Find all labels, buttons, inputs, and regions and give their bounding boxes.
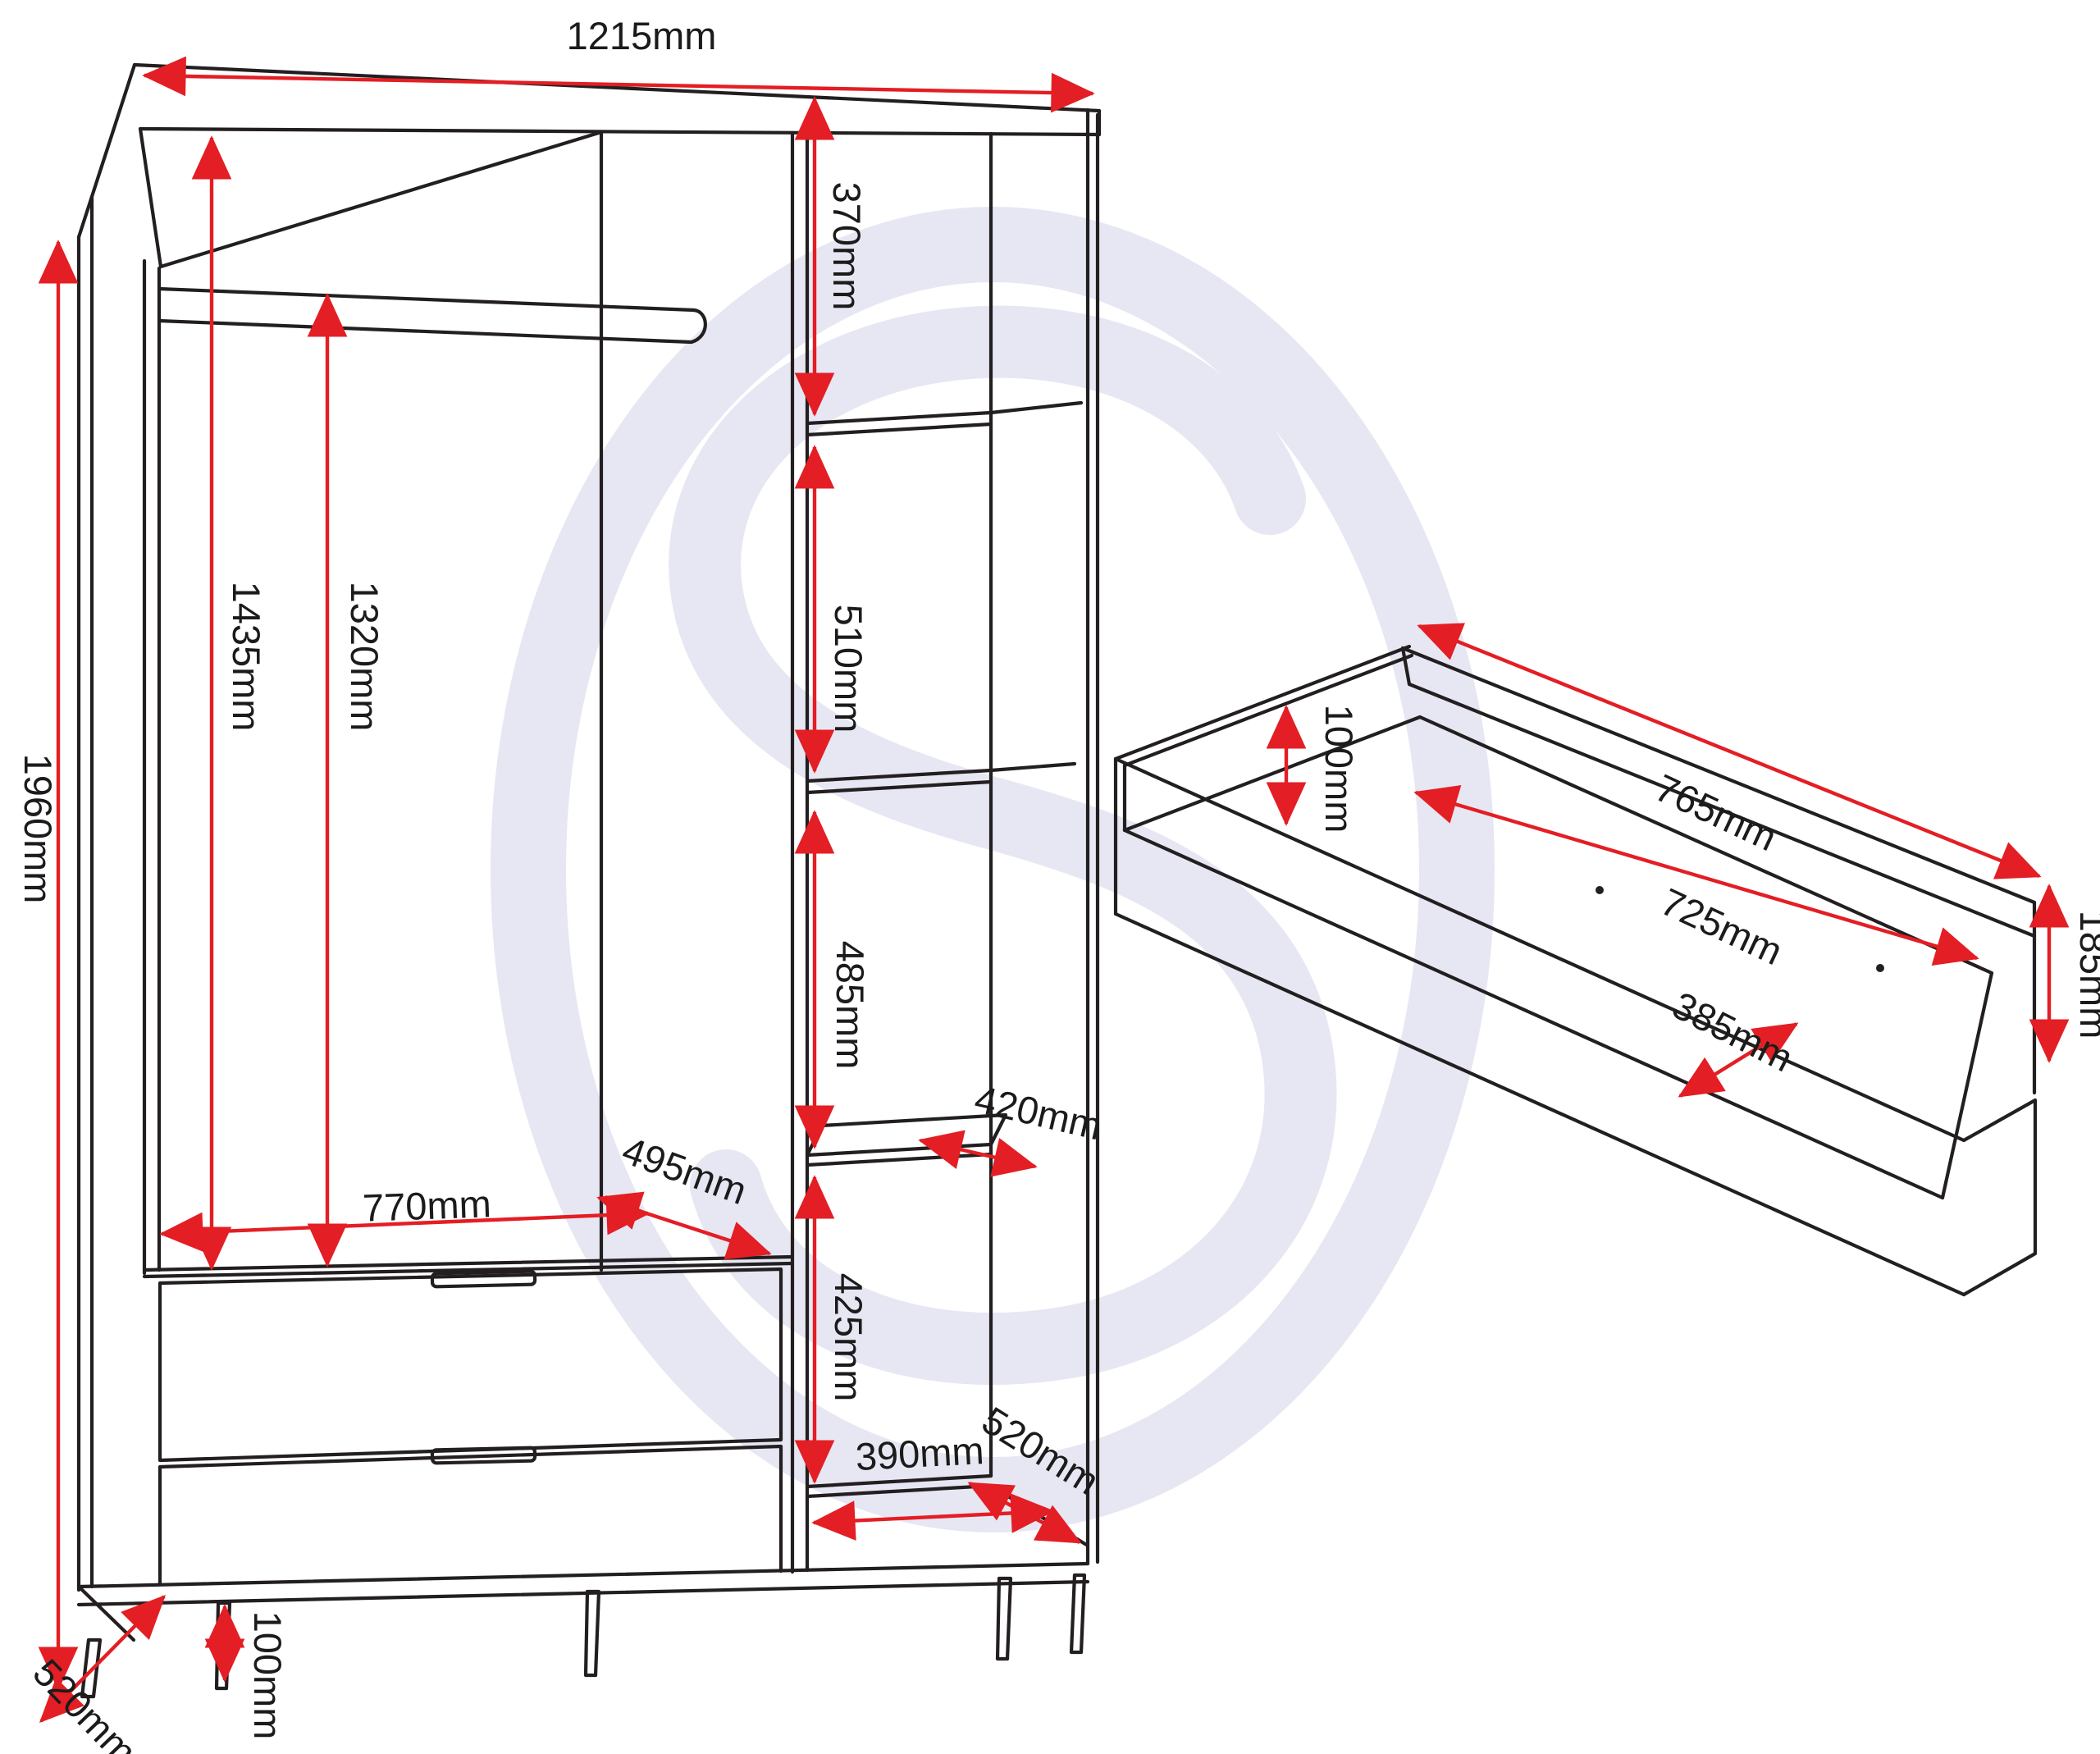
dim-label-height-total: 1960mm xyxy=(16,754,60,904)
dim-label-leg-height: 100mm xyxy=(246,1611,290,1740)
hanging-rail-top xyxy=(159,289,694,310)
leg-middle xyxy=(586,1592,599,1675)
drawer-back-hole-right xyxy=(1876,964,1884,972)
wardrobe-top-front-edge xyxy=(135,65,1099,111)
drawer-left-rim-outer xyxy=(1116,646,1409,759)
dim-label-sec3: 485mm xyxy=(829,941,872,1070)
dim-label-sec4: 425mm xyxy=(827,1273,870,1402)
watermark-s-curve xyxy=(705,342,1300,1349)
dim-label-dd-inner-height: 100mm xyxy=(1317,705,1361,834)
back-wall-top-edge xyxy=(161,132,601,267)
dim-label-dd-inner-depth: 385mm xyxy=(1666,983,1801,1080)
drawer-back-top-edge xyxy=(1403,648,2034,902)
dim-label-dd-back-width: 765mm xyxy=(1649,765,1783,859)
drawer-back-hole-left xyxy=(1596,886,1604,894)
drawer-left-rim-inner xyxy=(1125,655,1412,765)
shelf-3 xyxy=(807,1115,1006,1165)
dim-arrow-width-top xyxy=(144,75,1093,94)
dim-label-base-width: 390mm xyxy=(854,1428,984,1478)
dim-label-interior-height: 1435mm xyxy=(225,582,268,732)
plinth-rail-bottom xyxy=(79,1582,1088,1605)
dim-label-dd-inner-width: 725mm xyxy=(1655,879,1789,973)
leg-right xyxy=(997,1578,1011,1659)
drawer-floor-right-edge xyxy=(1942,973,1992,1198)
dim-label-sec1: 370mm xyxy=(825,182,869,311)
wardrobe-top-band-bottom xyxy=(140,129,1099,135)
left-panel-bottom-slant xyxy=(79,1587,134,1640)
dim-label-rail-height: 1320mm xyxy=(343,582,386,732)
drawer-floor-left-edge xyxy=(1125,717,1420,830)
drawer-floor-front-edge xyxy=(1125,830,1942,1198)
dim-label-width-top: 1215mm xyxy=(567,14,717,57)
plinth-rail-top xyxy=(79,1564,1088,1587)
drawer-2-front xyxy=(160,1446,781,1583)
dim-label-drawer-width: 770mm xyxy=(362,1181,491,1229)
wardrobe-left-top-slant xyxy=(79,65,135,237)
hanging-rail-bottom xyxy=(159,321,692,342)
dim-label-sec2: 510mm xyxy=(827,605,870,733)
leg-back-right xyxy=(1071,1575,1084,1652)
technical-drawing-page: 1215mm 1960mm 1435mm 1320mm 370mm 510mm … xyxy=(0,0,2100,1754)
diagram-canvas: 1215mm 1960mm 1435mm 1320mm 370mm 510mm … xyxy=(0,0,2100,1754)
drawer-right-end xyxy=(1964,1100,2035,1295)
ceiling-left-junction xyxy=(140,129,161,267)
dim-label-dd-back-height: 185mm xyxy=(2072,911,2100,1039)
